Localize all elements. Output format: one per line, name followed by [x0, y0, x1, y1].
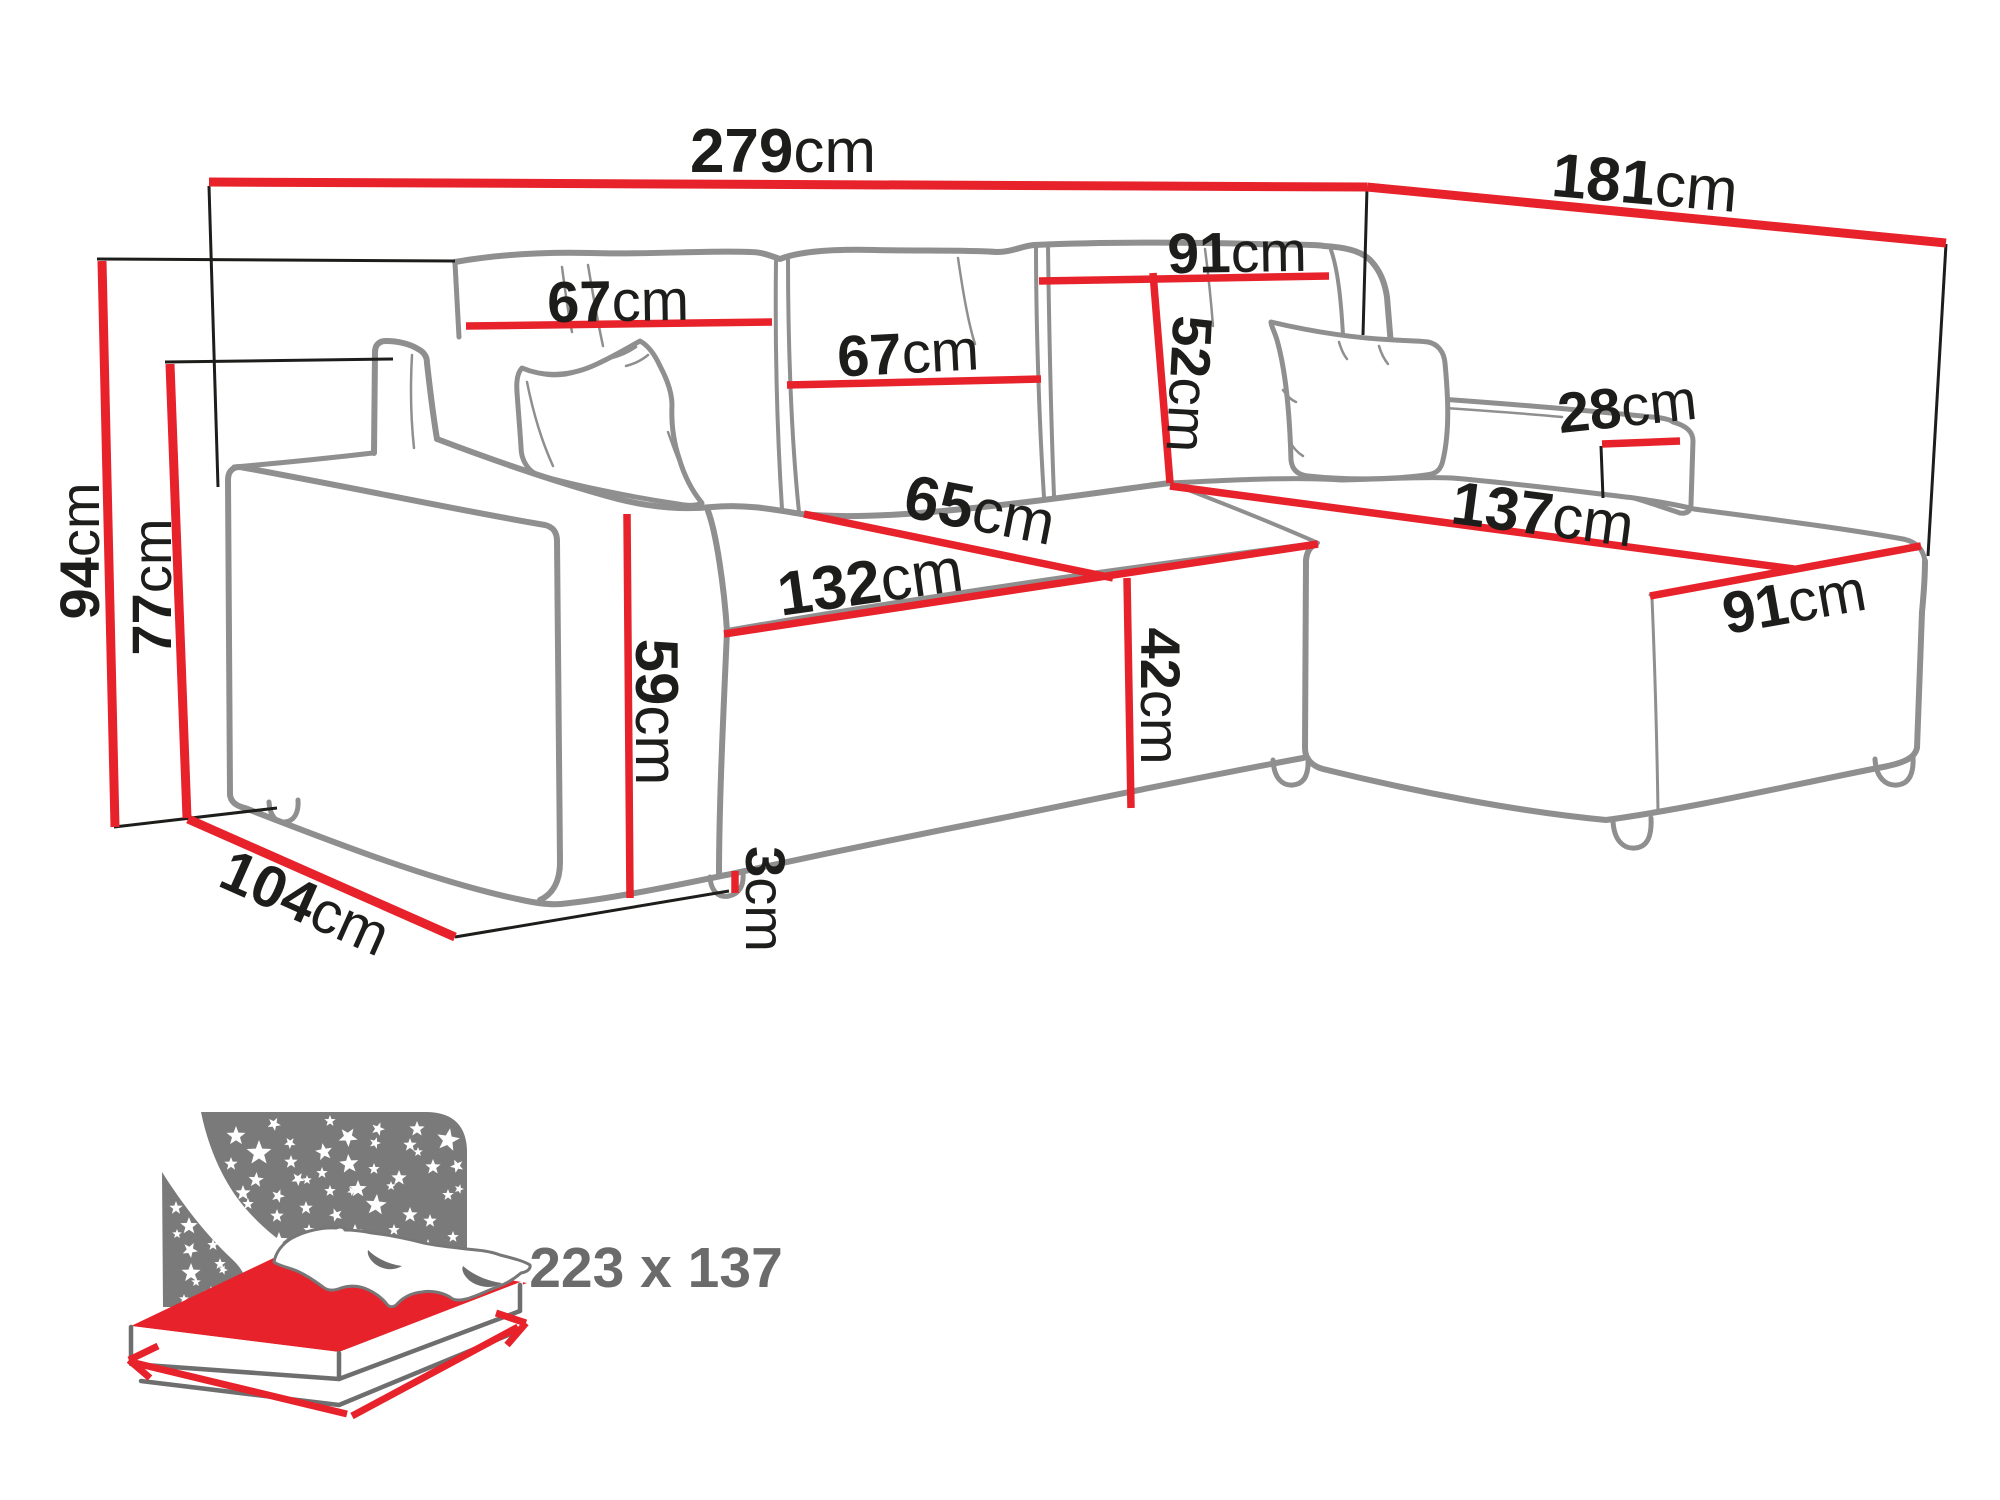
svg-text:279cm: 279cm: [690, 117, 876, 186]
svg-text:59cm: 59cm: [623, 639, 690, 786]
svg-text:91cm: 91cm: [1167, 220, 1307, 286]
svg-text:52cm: 52cm: [1154, 314, 1224, 454]
svg-text:94cm: 94cm: [48, 483, 111, 620]
svg-text:42cm: 42cm: [1129, 628, 1192, 765]
svg-text:77cm: 77cm: [120, 519, 183, 656]
svg-text:223 x 137: 223 x 137: [529, 1236, 783, 1300]
svg-text:67cm: 67cm: [836, 317, 981, 389]
svg-text:67cm: 67cm: [547, 268, 690, 335]
svg-text:3cm: 3cm: [734, 846, 797, 952]
